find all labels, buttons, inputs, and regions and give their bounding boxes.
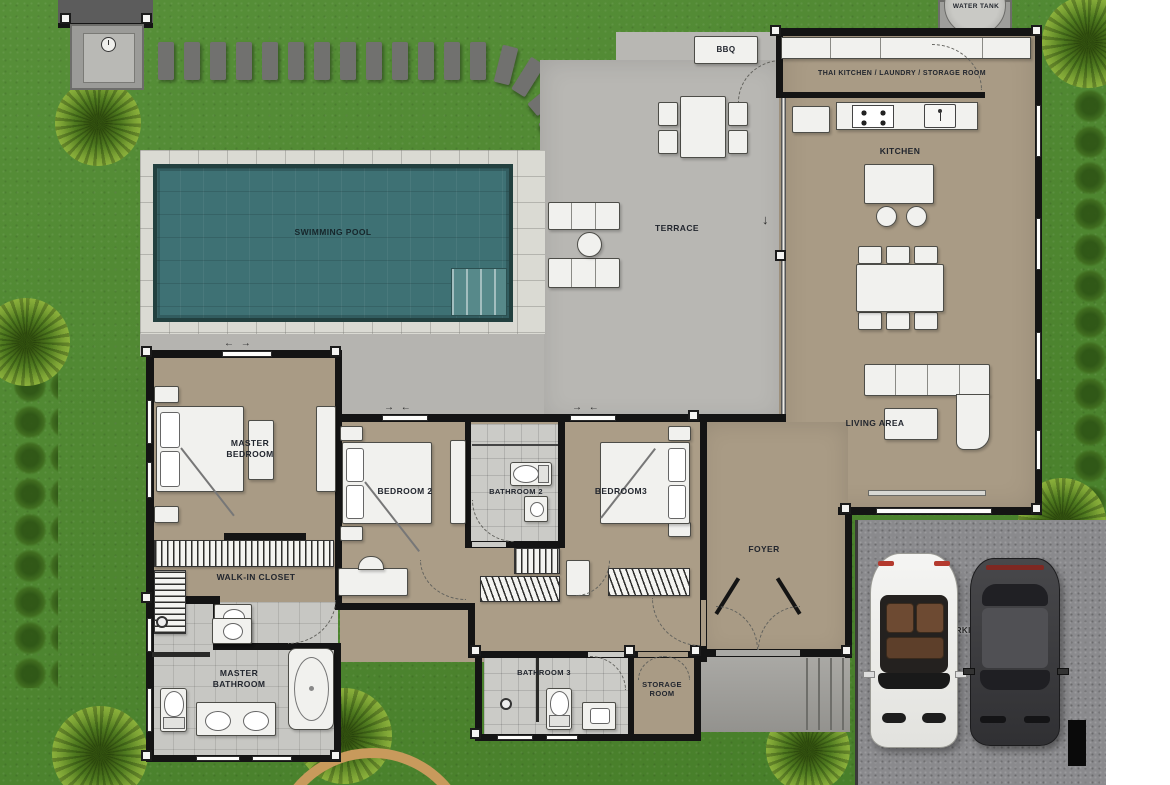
- basin-counter: [212, 618, 252, 644]
- label-water-tank: WATER TANK: [946, 3, 1006, 11]
- lawn: WATER TANK TERRACE SWIMMING POOL BBQ: [0, 0, 1106, 785]
- taillight: [878, 561, 894, 566]
- stove-icon: [852, 105, 894, 128]
- pillar: [770, 25, 781, 36]
- utility-meter-icon: [101, 37, 116, 52]
- sink: [524, 496, 548, 522]
- label-terrace: TERRACE: [645, 223, 709, 234]
- window: [147, 618, 152, 652]
- outdoor-chair: [728, 130, 748, 154]
- wall: [779, 92, 985, 98]
- nightstand: [668, 426, 691, 441]
- taillight: [934, 561, 950, 566]
- pillar: [690, 645, 701, 656]
- wall: [334, 643, 341, 762]
- pillar: [840, 503, 851, 514]
- window: [147, 462, 152, 498]
- pool-steps: [451, 268, 507, 316]
- nightstand: [340, 426, 363, 441]
- bed: [600, 442, 690, 524]
- pillar: [330, 346, 341, 357]
- pillar: [624, 645, 635, 656]
- dining-chair: [858, 312, 882, 330]
- sliding-window: [570, 415, 616, 421]
- foyer-door-opening: [716, 650, 800, 656]
- toilet: [546, 688, 572, 730]
- label-master-bathroom: MASTER BATHROOM: [204, 668, 274, 689]
- label-storage-room: STORAGE ROOM: [630, 680, 694, 699]
- gate-post: [1068, 720, 1086, 766]
- window: [546, 735, 578, 740]
- wardrobe: [450, 440, 466, 524]
- floor-plan: WATER TANK TERRACE SWIMMING POOL BBQ: [0, 0, 1170, 785]
- shower-head-icon: [500, 698, 512, 710]
- label-bedroom-3: BEDROOM3: [588, 486, 654, 497]
- slide-arrows-icon: ← →: [224, 338, 253, 349]
- closet-shelves: [154, 540, 334, 567]
- pillar: [688, 410, 699, 421]
- label-kitchen: KITCHEN: [870, 146, 930, 157]
- swimming-pool: [153, 164, 513, 322]
- toilet: [160, 688, 187, 732]
- sink: [582, 702, 616, 730]
- tree-left: [0, 298, 70, 386]
- outdoor-chair: [658, 130, 678, 154]
- closet-shelves: [514, 548, 560, 574]
- car-seat: [916, 603, 944, 633]
- nightstand: [154, 386, 179, 403]
- side-mirror: [863, 671, 875, 678]
- label-bbq: BBQ: [717, 45, 736, 55]
- wall: [694, 651, 701, 741]
- label-bathroom-2: BATHROOM 2: [478, 487, 554, 496]
- nightstand: [154, 506, 179, 523]
- label-foyer: FOYER: [736, 544, 792, 555]
- window: [1036, 332, 1041, 380]
- gate-pillar-left: [60, 13, 71, 24]
- sliding-window: [222, 351, 272, 357]
- outdoor-sofa: [548, 202, 620, 230]
- shower-head-icon: [156, 616, 168, 628]
- shower-partition: [152, 652, 210, 657]
- outdoor-chair: [658, 102, 678, 126]
- sliding-window: [382, 415, 428, 421]
- label-swimming-pool: SWIMMING POOL: [288, 227, 378, 238]
- bed: [342, 442, 432, 524]
- stool: [906, 206, 927, 227]
- window: [1036, 430, 1041, 470]
- shower-rail: [472, 444, 558, 446]
- label-walk-in-closet: WALK-IN CLOSET: [206, 572, 306, 583]
- headlight: [980, 716, 1006, 723]
- dining-table: [856, 264, 944, 312]
- window: [196, 756, 240, 761]
- hall-foyer-opening: [701, 600, 706, 646]
- fridge: [792, 106, 830, 133]
- pillar: [470, 645, 481, 656]
- double-vanity: [196, 702, 276, 736]
- meter-pad: [70, 24, 144, 90]
- window: [252, 756, 292, 761]
- pillar: [1031, 503, 1042, 514]
- sofa-chaise: [956, 394, 990, 450]
- tree-top-left: [55, 80, 141, 166]
- outdoor-round-table: [577, 232, 602, 257]
- dining-chair: [914, 246, 938, 264]
- wardrobe: [316, 406, 336, 492]
- side-mirror: [963, 668, 975, 675]
- hood-vent: [922, 713, 946, 723]
- label-bedroom-2: BEDROOM 2: [372, 486, 438, 497]
- wall: [845, 507, 852, 658]
- bbq-station: BBQ: [694, 36, 758, 64]
- thai-kitchen-counter: [781, 37, 1031, 59]
- gate-pillar-right: [141, 13, 152, 24]
- window: [147, 688, 152, 732]
- pillar: [141, 592, 152, 603]
- glass-door-handle: [775, 250, 786, 261]
- label-living-area: LIVING AREA: [838, 418, 912, 429]
- kitchen-island: [864, 164, 934, 204]
- tree-bottom-left: [52, 706, 148, 785]
- tree-top-right: [1042, 0, 1106, 88]
- tv-console: [868, 490, 986, 496]
- label-bathroom-3: BATHROOM 3: [506, 668, 582, 677]
- rug: [608, 568, 690, 596]
- arrow-down-icon: ↓: [762, 212, 769, 227]
- dining-chair: [858, 246, 882, 264]
- pillar: [1031, 25, 1042, 36]
- nightstand: [340, 526, 363, 541]
- outdoor-dining-table: [680, 96, 726, 158]
- bathroom2-door-opening: [472, 542, 506, 547]
- hood-vent: [882, 713, 906, 723]
- outdoor-chair: [728, 102, 748, 126]
- toilet: [510, 462, 552, 486]
- window: [497, 735, 533, 740]
- dining-chair: [914, 312, 938, 330]
- bathtub: [288, 648, 334, 730]
- pillar: [141, 750, 152, 761]
- desk: [338, 568, 408, 596]
- pillar: [470, 728, 481, 739]
- wall: [335, 603, 475, 610]
- window: [1036, 218, 1041, 270]
- outdoor-sofa: [548, 258, 620, 288]
- pillar: [841, 645, 852, 656]
- dining-chair: [886, 246, 910, 264]
- car-seat: [886, 603, 914, 633]
- label-master-bedroom: MASTER BEDROOM: [214, 438, 286, 459]
- sink-icon: [924, 104, 956, 128]
- wall: [558, 422, 565, 548]
- hedge-left: [12, 368, 58, 688]
- stool: [876, 206, 897, 227]
- pillar: [141, 346, 152, 357]
- headlight: [1024, 716, 1050, 723]
- wall: [776, 28, 1042, 36]
- dining-chair: [886, 312, 910, 330]
- window: [1036, 105, 1041, 157]
- car-white-convertible: [870, 553, 958, 748]
- window: [147, 400, 152, 444]
- taillight: [986, 565, 1044, 570]
- deck-walkway-bedrooms: [340, 354, 544, 420]
- nightstand: [668, 522, 691, 537]
- wall: [146, 755, 341, 762]
- closet-shelves: [480, 576, 560, 602]
- porch: [700, 656, 850, 732]
- sliding-window: [876, 508, 992, 514]
- slide-arrows-icon: → ←: [384, 402, 413, 413]
- car-dark-sedan: [970, 558, 1060, 746]
- slide-arrows-icon: → ←: [572, 402, 601, 413]
- side-mirror: [1057, 668, 1069, 675]
- pillar: [330, 750, 341, 761]
- sofa-sectional: [864, 364, 990, 396]
